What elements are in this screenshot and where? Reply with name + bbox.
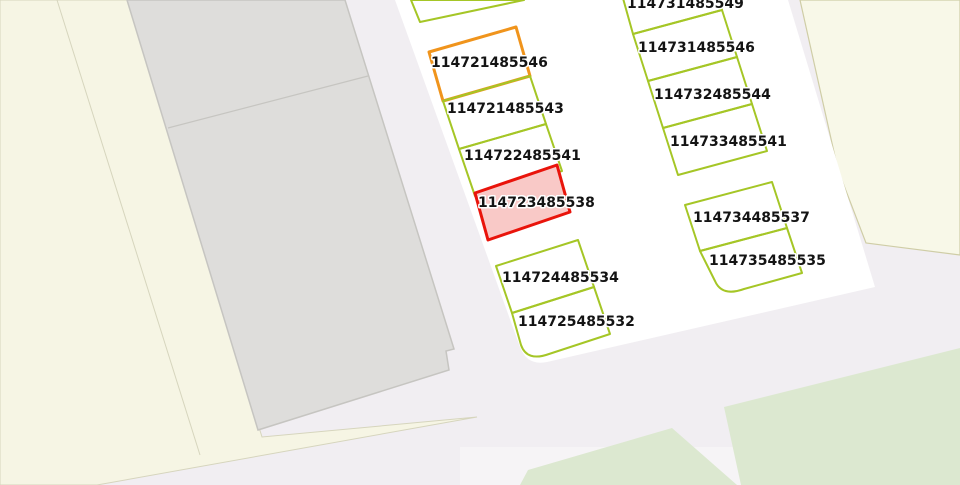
parcel-label-114731485549: 114731485549 <box>627 0 744 12</box>
parcel-label-114733485541: 114733485541 <box>670 134 787 150</box>
parcel-label-114721485546: 114721485546 <box>431 55 548 71</box>
map-canvas[interactable]: 1147214855461147214855431147224855411147… <box>0 0 960 485</box>
parcel-label-114725485532: 114725485532 <box>518 314 635 330</box>
landuse-layer <box>0 0 960 485</box>
parcel-label-114721485543: 114721485543 <box>447 101 564 117</box>
parcel-label-114724485534: 114724485534 <box>502 270 619 286</box>
parcel-label-114732485544: 114732485544 <box>654 87 771 103</box>
parcel-label-114722485541: 114722485541 <box>464 148 581 164</box>
parcel-label-114723485538: 114723485538 <box>478 195 595 211</box>
map-viewport[interactable]: 1147214855461147214855431147224855411147… <box>0 0 960 485</box>
parcel-label-114731485546: 114731485546 <box>638 40 755 56</box>
parcel-label-114734485537: 114734485537 <box>693 210 810 226</box>
parcel-label-114735485535: 114735485535 <box>709 253 826 269</box>
